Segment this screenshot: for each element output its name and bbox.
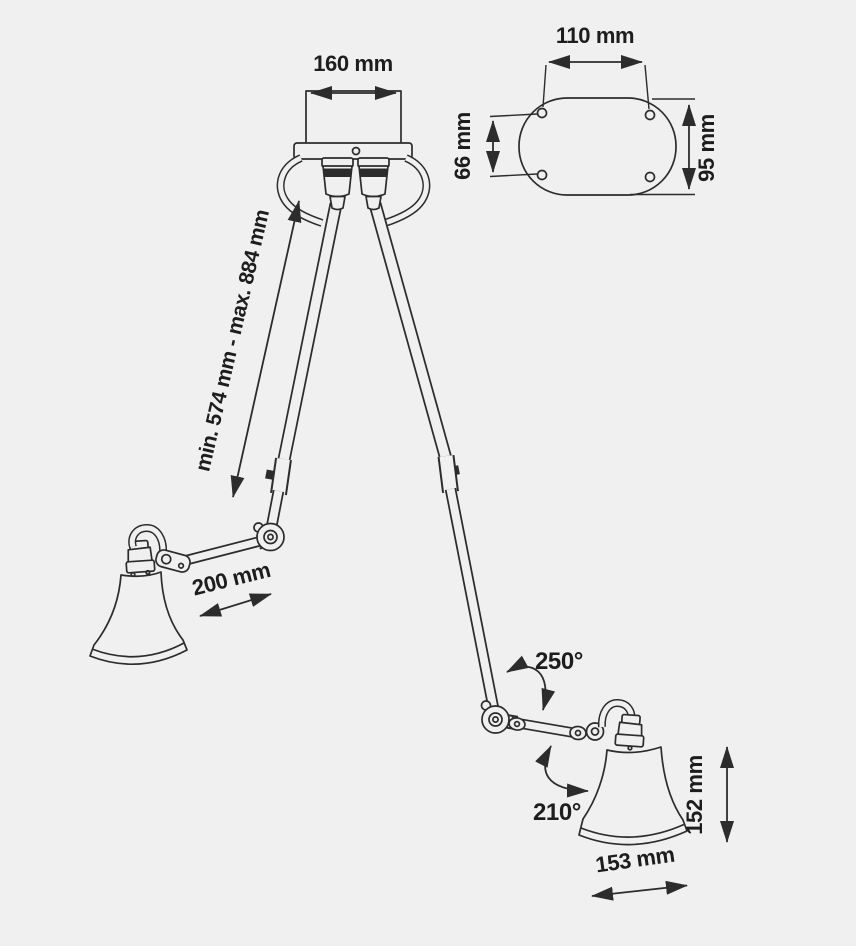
extension-line: [543, 65, 546, 107]
rotation-210-label: 210°: [533, 799, 581, 826]
dim-canopy-width-label: 160 mm: [313, 51, 393, 76]
canopy-box: [306, 91, 401, 144]
dim-hole-spacing-label: 66 mm: [450, 112, 475, 180]
left-shade-bell: [90, 572, 187, 664]
dim-forearm-label: 200 mm: [190, 557, 273, 601]
joint-disc: [482, 706, 509, 733]
dimension-diagram: 110 mm 66 mm 95 mm: [0, 0, 856, 946]
right-upper-arm: [375, 204, 494, 711]
left-upper-arm: [265, 204, 336, 527]
shade-outline: [90, 572, 187, 664]
dim-shade-width-arrow: [592, 886, 687, 897]
ceiling-canopy: [265, 91, 494, 711]
left-shade-bracket: [154, 548, 191, 573]
canopy-hook-left: [281, 158, 322, 223]
dim-plate-width-label: 110 mm: [556, 23, 634, 48]
socket-flange: [126, 560, 155, 573]
dim-shade-height-label: 152 mm: [682, 755, 707, 835]
dim-shade-width-label: 153 mm: [594, 842, 676, 878]
right-arm-head-assembly: [482, 701, 688, 845]
dim-forearm-arrow: [200, 594, 271, 616]
socket-flange: [615, 734, 644, 747]
joint-disc: [257, 524, 284, 551]
dim-plate-height-label: 95 mm: [694, 114, 719, 182]
socket-band: [324, 169, 352, 178]
canopy-socket-right: [358, 158, 389, 210]
right-shade-bell: [579, 747, 687, 845]
left-forearm: [187, 540, 269, 561]
canopy-hook-right: [385, 158, 426, 223]
left-arm-head-assembly: [90, 523, 284, 664]
mounting-plate-top-view: 110 mm 66 mm 95 mm: [450, 23, 719, 195]
rotation-arc-210: [545, 746, 588, 791]
right-elbow-joint: [482, 701, 526, 733]
right-shade-socket: [615, 714, 645, 751]
socket-band: [360, 169, 388, 178]
diagram-svg: 110 mm 66 mm 95 mm: [0, 0, 856, 946]
dim-arm-range-label: min. 574 mm - max. 884 mm: [191, 207, 274, 473]
canopy-socket-left: [322, 158, 353, 210]
link-eye: [569, 726, 586, 741]
rotation-250-label: 250°: [535, 648, 583, 675]
